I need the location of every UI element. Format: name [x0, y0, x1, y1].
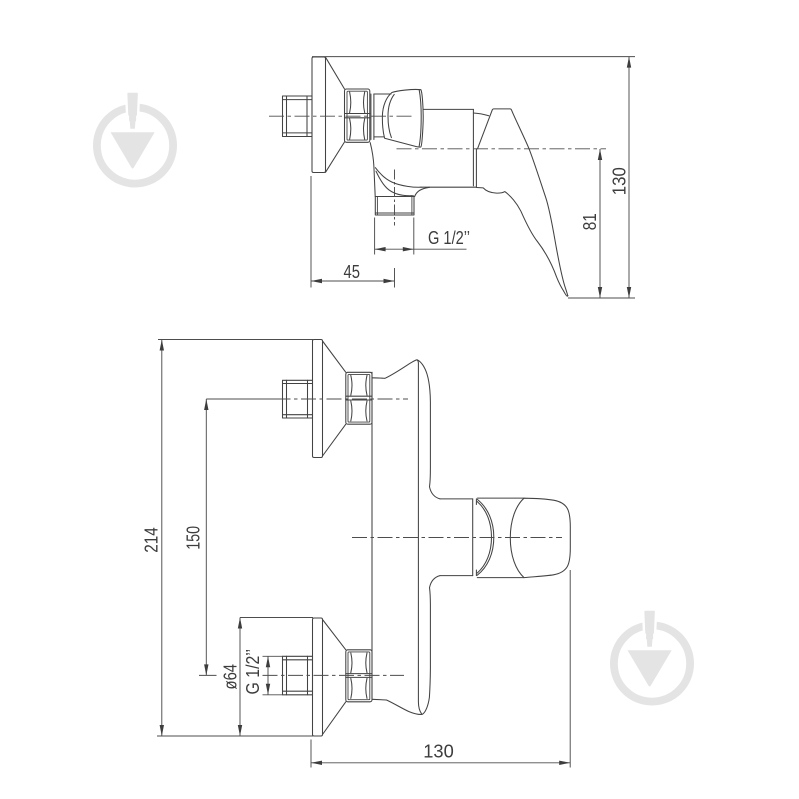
- svg-text:G 1/2’’: G 1/2’’: [243, 649, 263, 695]
- svg-text:ø64: ø64: [220, 664, 240, 690]
- svg-text:150: 150: [184, 526, 204, 550]
- svg-text:81: 81: [580, 213, 600, 230]
- svg-text:130: 130: [609, 167, 629, 195]
- svg-text:G 1/2’’: G 1/2’’: [428, 228, 470, 248]
- svg-text:45: 45: [344, 262, 361, 282]
- svg-text:214: 214: [141, 527, 161, 553]
- svg-text:130: 130: [423, 742, 454, 762]
